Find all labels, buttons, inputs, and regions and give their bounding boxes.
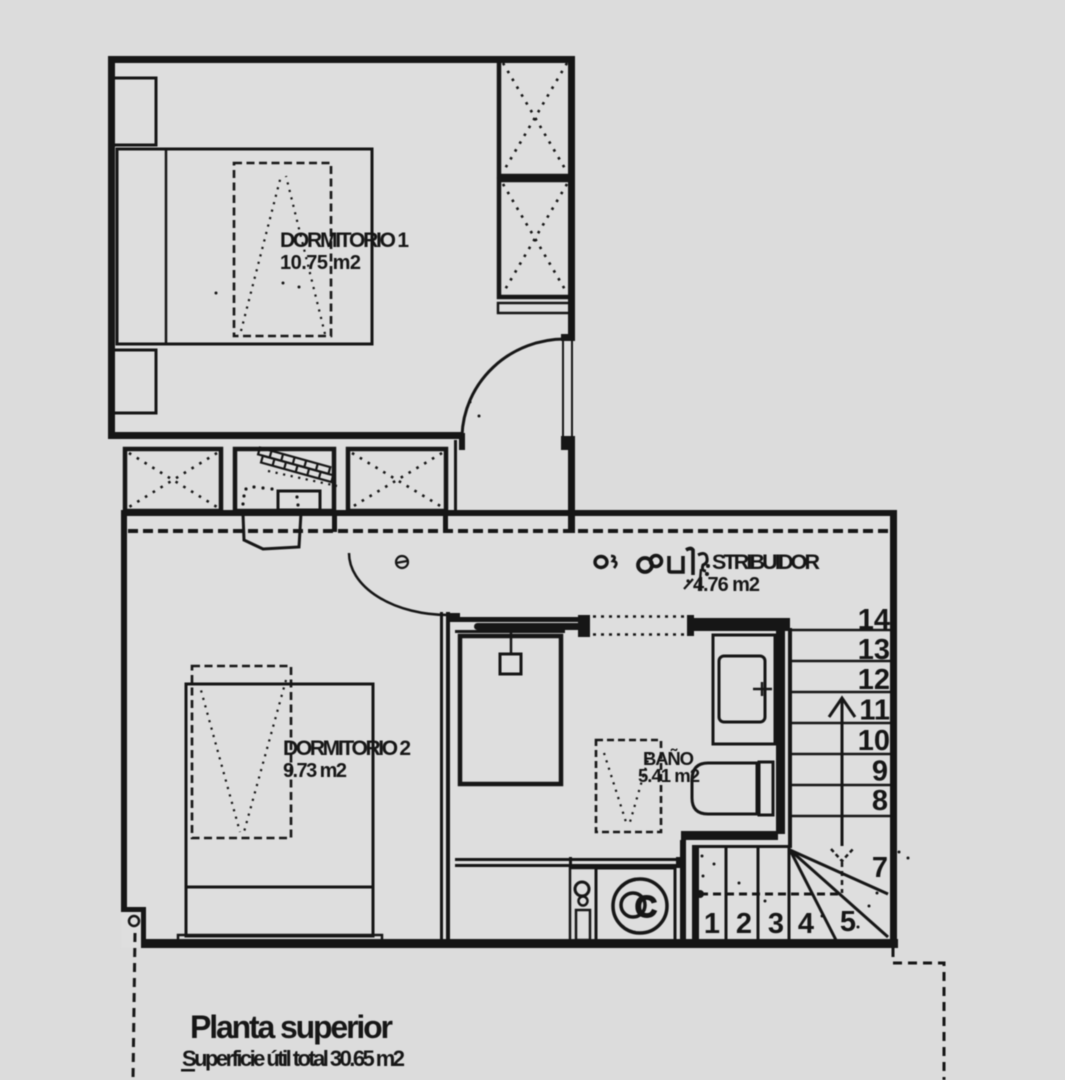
svg-text:13: 13: [858, 634, 890, 666]
svg-text:Planta superior: Planta superior: [190, 1009, 393, 1045]
svg-text:Superficie útil total 30.65 m2: Superficie útil total 30.65 m2: [182, 1046, 405, 1071]
svg-text:2: 2: [736, 908, 752, 940]
svg-text:DORMITORIO 2: DORMITORIO 2: [283, 737, 411, 760]
svg-text:STRIBUIDOR: STRIBUIDOR: [712, 550, 820, 574]
svg-text:DORMITORIO 1: DORMITORIO 1: [280, 229, 409, 252]
svg-text:7: 7: [872, 852, 888, 884]
svg-text:5: 5: [840, 906, 856, 938]
svg-text:4: 4: [798, 908, 814, 940]
svg-text:12: 12: [858, 664, 890, 696]
svg-text:8: 8: [872, 785, 888, 817]
svg-text:10: 10: [858, 725, 890, 757]
svg-text:C: C: [635, 889, 657, 924]
svg-text:4.76 m2: 4.76 m2: [693, 574, 760, 596]
svg-text:14: 14: [858, 604, 890, 636]
svg-text:10.75 m2: 10.75 m2: [280, 252, 361, 274]
svg-text:1: 1: [704, 908, 720, 940]
svg-text:3: 3: [768, 908, 784, 940]
svg-text:9: 9: [872, 756, 888, 788]
svg-text:5.41 m2: 5.41 m2: [638, 765, 700, 786]
svg-text:11: 11: [859, 695, 890, 727]
svg-text:9.73 m2: 9.73 m2: [283, 760, 347, 782]
